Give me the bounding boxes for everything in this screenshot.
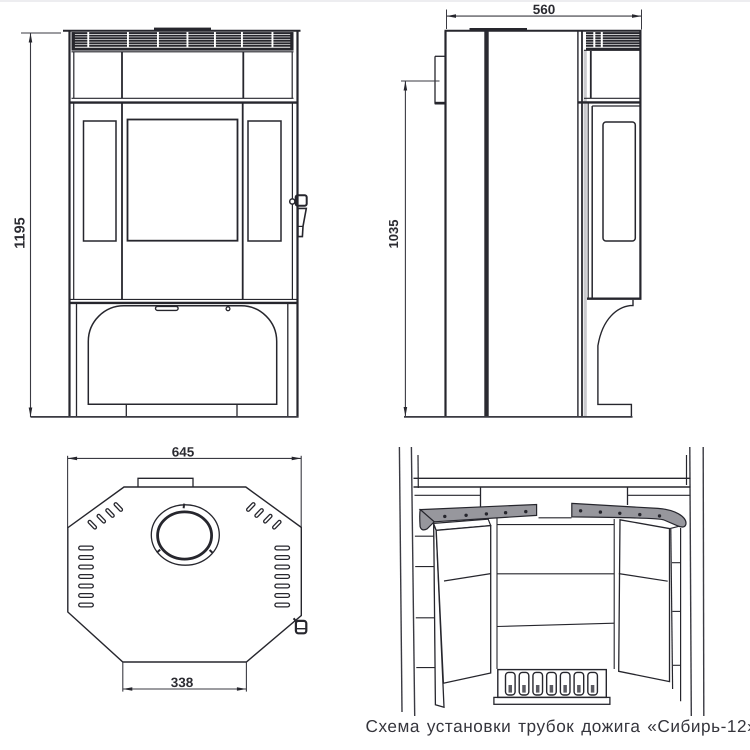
svg-text:645: 645 (172, 444, 195, 459)
svg-text:338: 338 (171, 675, 194, 690)
svg-text:1195: 1195 (13, 217, 29, 248)
svg-text:Схема установки трубок дожига: Схема установки трубок дожига «Сибирь-12… (366, 716, 750, 736)
svg-text:1035: 1035 (386, 220, 401, 249)
svg-text:560: 560 (533, 2, 556, 17)
